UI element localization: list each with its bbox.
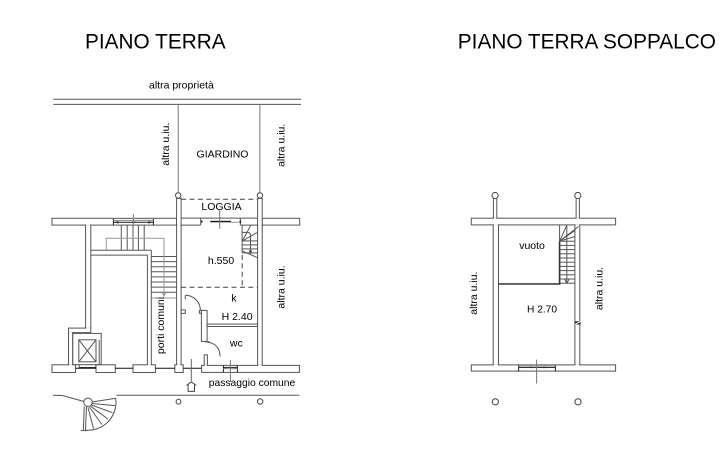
svg-text:vuoto: vuoto [519,240,545,252]
svg-text:GIARDINO: GIARDINO [197,149,249,161]
svg-text:PIANO TERRA SOPPALCO: PIANO TERRA SOPPALCO [458,31,716,54]
svg-text:altra u.iu.: altra u.iu. [275,124,287,167]
svg-text:altra proprietà: altra proprietà [149,79,214,91]
svg-text:wc: wc [229,338,243,350]
svg-text:LOGGIA: LOGGIA [201,201,241,213]
svg-text:H 2.70: H 2.70 [527,304,557,315]
svg-text:altra u.iu.: altra u.iu. [593,267,605,310]
svg-text:h.550: h.550 [208,255,234,267]
svg-text:k: k [231,293,237,305]
svg-text:altra u.iu.: altra u.iu. [275,265,287,308]
svg-text:PIANO TERRA: PIANO TERRA [85,31,226,54]
svg-text:altra u.iu.: altra u.iu. [160,123,172,166]
svg-text:H 2.40: H 2.40 [222,311,253,323]
svg-text:passaggio comune: passaggio comune [209,378,296,389]
svg-text:altra u.iu.: altra u.iu. [468,271,480,314]
svg-text:porti comuni: porti comuni [155,297,167,354]
